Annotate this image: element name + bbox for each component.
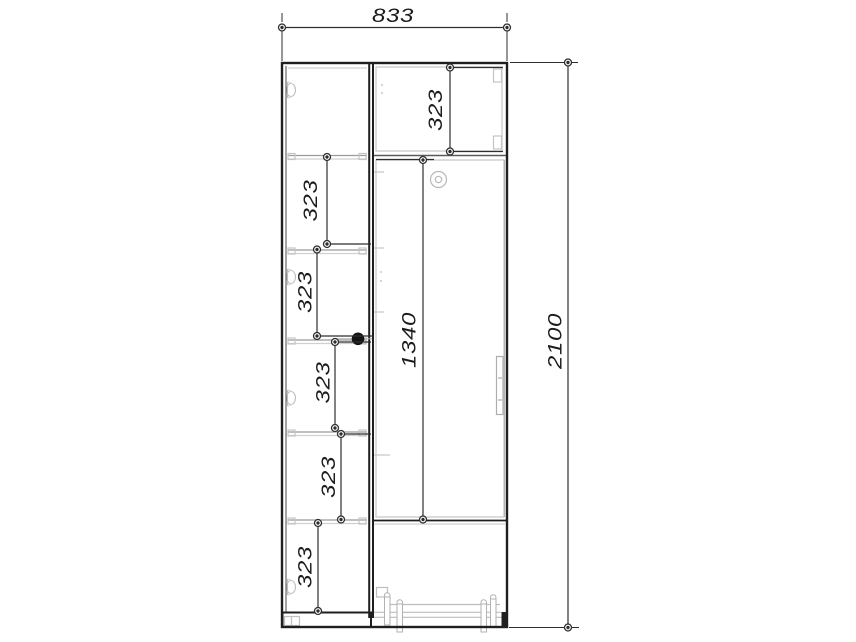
adjustable-leg-icon [490, 595, 496, 627]
dim-left-cell-1 [324, 154, 372, 248]
hinge-plate-icon [494, 69, 502, 82]
technical-drawing-page: 833 2100 1340 323 323 323 323 323 323 [0, 0, 856, 642]
right-base-corner [502, 612, 508, 627]
shelf-pin-dot-icon [352, 333, 365, 346]
dim-middle-door-label: 1340 [400, 312, 421, 368]
adjustable-leg-icon [384, 593, 390, 625]
dimension-labels: 833 2100 1340 323 323 323 323 323 323 [296, 6, 567, 588]
cabinet-carcass [282, 63, 507, 627]
door-hinge-icon [287, 82, 296, 98]
hinge-plate-icon [494, 136, 502, 149]
dim-left-cell-2 [314, 246, 374, 340]
plinth-foot-icon [285, 617, 300, 626]
door-hinge-icon [287, 269, 296, 285]
dim-left-cell-4-label: 323 [319, 456, 340, 498]
cam-lock-icon [431, 172, 447, 188]
dim-left-cell-4 [338, 431, 372, 524]
door-handle-icon [497, 357, 504, 415]
dim-left-cell-2-label: 323 [296, 271, 317, 313]
wardrobe-elevation-drawing: 833 2100 1340 323 323 323 323 323 323 [0, 0, 856, 642]
dim-left-cell-3 [332, 339, 372, 432]
door-hinge-icon [287, 579, 296, 595]
dim-left-cell-3-label: 323 [314, 362, 335, 404]
dim-overall-height [509, 59, 579, 631]
dim-left-cell-5-label: 323 [296, 546, 317, 588]
dim-overall-width-label: 833 [372, 6, 414, 27]
door-hinge-icon [287, 390, 296, 406]
dim-top-right-cell [447, 64, 504, 155]
dim-left-cell-1-label: 323 [301, 180, 322, 222]
dim-top-right-cell-label: 323 [426, 89, 447, 131]
main-door-panel [376, 160, 505, 517]
cam-lock-inner-icon [435, 176, 441, 182]
dim-overall-height-label: 2100 [546, 313, 567, 370]
cabinet-outline [282, 63, 507, 627]
plinth-panel [283, 613, 372, 628]
